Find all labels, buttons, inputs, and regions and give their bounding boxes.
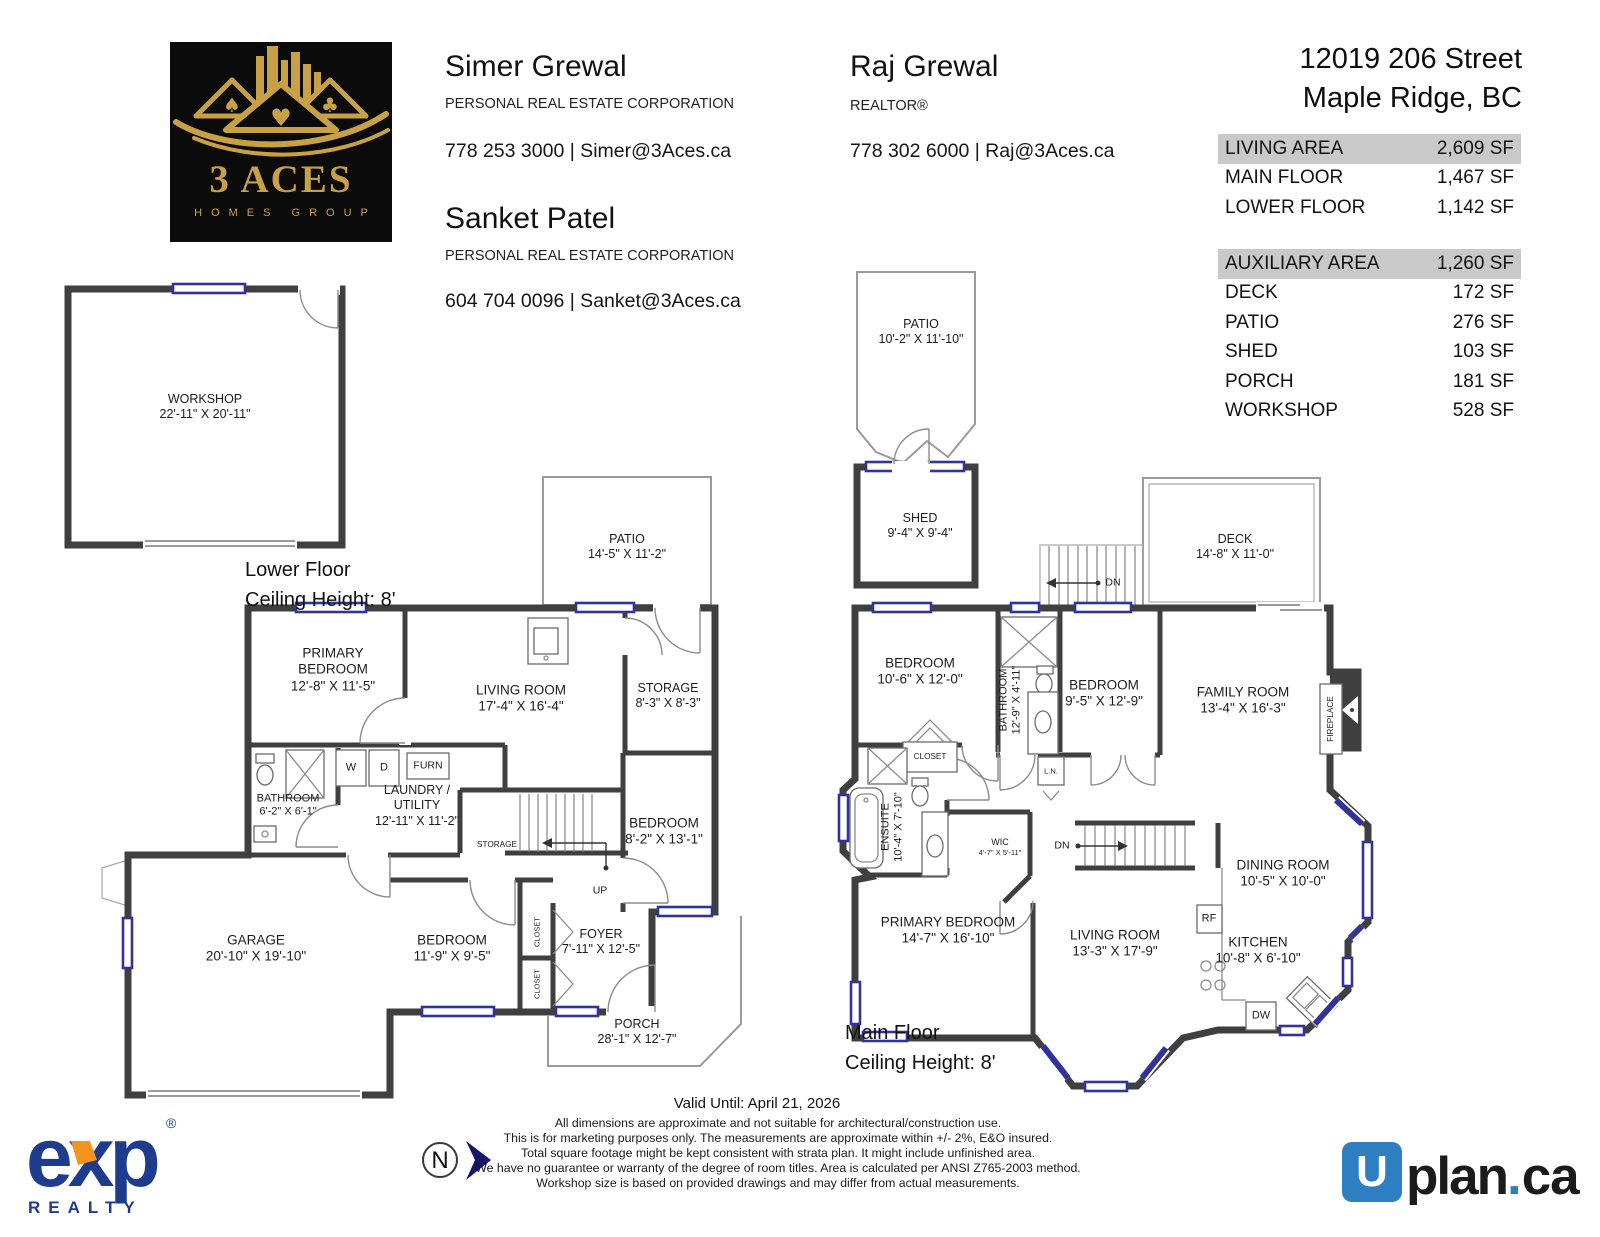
room-label-workshop: WORKSHOP22'-11" X 20'-11" bbox=[159, 392, 250, 423]
label-dryer: D bbox=[380, 761, 388, 774]
room-label-primary-bedroom-main: PRIMARY BEDROOM14'-7" X 16'-10" bbox=[881, 915, 1016, 948]
row-label: MAIN FLOOR bbox=[1225, 167, 1343, 189]
room-label-bedroom-lower: BEDROOM11'-9" X 9'-5" bbox=[414, 933, 491, 966]
room-label-bedroom-a: BEDROOM10'-6" X 12'-0" bbox=[877, 656, 962, 689]
row-value: 1,260 SF bbox=[1437, 253, 1514, 275]
room-label-garage: GARAGE20'-10" X 19'-10" bbox=[206, 933, 306, 966]
row-value: 103 SF bbox=[1453, 341, 1514, 363]
room-label-laundry-utility: LAUNDRY / UTILITY12'-11" X 11'-2" bbox=[375, 783, 459, 829]
row-label: SHED bbox=[1225, 341, 1278, 363]
row-value: 181 SF bbox=[1453, 371, 1514, 393]
row-value: 276 SF bbox=[1453, 312, 1514, 334]
agent-name-simer: Simer Grewal bbox=[445, 50, 627, 84]
disclaimer-line: This is for marketing purposes only. The… bbox=[308, 1131, 1248, 1146]
label-stairs-dn: DN bbox=[1054, 840, 1069, 853]
room-label-primary-bedroom-lower: PRIMARY BEDROOM12'-8" X 11'-5" bbox=[291, 645, 375, 694]
label-storage-understairs: STORAGE bbox=[477, 840, 517, 850]
lower-floor-title: Lower FloorCeiling Height: 8' bbox=[245, 555, 396, 615]
row-label: PORCH bbox=[1225, 371, 1294, 393]
exp-registered-mark: ® bbox=[166, 1115, 177, 1131]
room-label-kitchen: KITCHEN10'-8" X 6'-10" bbox=[1215, 935, 1300, 968]
spade-icon: ♠ bbox=[223, 93, 241, 117]
disclaimer: All dimensions are approximate and not s… bbox=[308, 1116, 1248, 1191]
address-line2: Maple Ridge, BC bbox=[1299, 79, 1522, 118]
room-label-patio-lower: PATIO14'-5" X 11'-2" bbox=[588, 532, 666, 563]
table-row: AUXILIARY AREA 1,260 SF bbox=[1218, 249, 1521, 279]
table-row: LOWER FLOOR 1,142 SF bbox=[1218, 193, 1521, 223]
label-closet-1: CLOSET bbox=[532, 917, 541, 947]
agent-name-sanket: Sanket Patel bbox=[445, 202, 615, 236]
label-deck-stairs-dn: DN bbox=[1105, 577, 1120, 590]
disclaimer-line: We have no guarantee or warranty of the … bbox=[308, 1161, 1248, 1176]
uplan-ca-text: ca bbox=[1522, 1153, 1579, 1202]
room-label-living-room-lower: LIVING ROOM17'-4" X 16'-4" bbox=[476, 683, 566, 716]
disclaimer-line: Workshop size is based on provided drawi… bbox=[308, 1176, 1248, 1191]
label-fridge: RF bbox=[1202, 912, 1217, 925]
row-value: 2,609 SF bbox=[1437, 138, 1514, 160]
label-furnace: FURN bbox=[413, 760, 442, 773]
room-label-family-room: FAMILY ROOM13'-4" X 16'-3" bbox=[1197, 685, 1290, 718]
room-label-deck: DECK14'-8" X 11'-0" bbox=[1196, 532, 1274, 563]
label-stairs-up: UP bbox=[593, 885, 608, 898]
uplan-logo: U plan . ca bbox=[1342, 1142, 1579, 1202]
table-row: MAIN FLOOR 1,467 SF bbox=[1218, 164, 1521, 194]
room-label-patio-main: PATIO10'-2" X 11'-10" bbox=[879, 317, 964, 348]
agent-title-simer: PERSONAL REAL ESTATE CORPORATION bbox=[445, 96, 734, 112]
room-label-bathroom-lower: BATHROOM6'-2" X 6'-1" bbox=[257, 793, 320, 820]
disclaimer-line: Total square footage might be kept consi… bbox=[308, 1146, 1248, 1161]
table-row: DECK 172 SF bbox=[1218, 279, 1521, 309]
disclaimer-line: All dimensions are approximate and not s… bbox=[308, 1116, 1248, 1131]
agent-name-raj: Raj Grewal bbox=[850, 50, 998, 84]
label-dishwasher: DW bbox=[1252, 1009, 1270, 1022]
agent-contact-sanket: 604 704 0096 | Sanket@3Aces.ca bbox=[445, 290, 741, 313]
row-value: 1,142 SF bbox=[1437, 197, 1514, 219]
row-label: LOWER FLOOR bbox=[1225, 197, 1365, 219]
three-aces-logo: ♠ ♥ ♣ 3 ACES HOMES GROUP bbox=[170, 42, 392, 242]
label-fireplace: FIREPLACE bbox=[1326, 696, 1336, 742]
row-label: LIVING AREA bbox=[1225, 138, 1343, 160]
agent-title-raj: REALTOR® bbox=[850, 98, 928, 114]
heart-icon: ♥ bbox=[270, 104, 292, 132]
uplan-u-icon: U bbox=[1342, 1142, 1402, 1202]
address-line1: 12019 206 Street bbox=[1299, 40, 1522, 79]
north-letter: N bbox=[431, 1147, 448, 1175]
room-label-living-room-main: LIVING ROOM13'-3" X 17'-9" bbox=[1070, 928, 1160, 961]
auxiliary-area-table: AUXILIARY AREA 1,260 SF DECK 172 SF PATI… bbox=[1218, 249, 1521, 426]
table-row: PATIO 276 SF bbox=[1218, 308, 1521, 338]
table-row: WORKSHOP 528 SF bbox=[1218, 397, 1521, 427]
room-label-bathroom-main: BATHROOM12'-9" X 4'-11" bbox=[998, 666, 1025, 735]
label-linen: L.N. bbox=[1044, 766, 1058, 775]
room-label-wic: WIC4'-7" X 5'-11" bbox=[979, 837, 1022, 857]
label-closet-2: CLOSET bbox=[532, 969, 541, 999]
exp-realty-logo: exp ® REALTY bbox=[26, 1110, 196, 1225]
brand-name: 3 ACES bbox=[170, 157, 392, 202]
label-washer: W bbox=[346, 761, 356, 774]
table-row: PORCH 181 SF bbox=[1218, 367, 1521, 397]
room-label-ensuite: ENSUITE10'-4" X 7'-10" bbox=[880, 792, 907, 862]
valid-until: Valid Until: April 21, 2026 bbox=[674, 1095, 841, 1112]
table-row: LIVING AREA 2,609 SF bbox=[1218, 134, 1521, 164]
label-closet-main: CLOSET bbox=[914, 752, 947, 762]
club-icon: ♣ bbox=[321, 93, 339, 117]
floor-plan-sheet: { "header": { "brand": { "name_top": "3 … bbox=[0, 0, 1600, 1237]
agent-title-sanket: PERSONAL REAL ESTATE CORPORATION bbox=[445, 248, 734, 264]
row-label: AUXILIARY AREA bbox=[1225, 253, 1380, 275]
three-aces-emblem-icon: ♠ ♥ ♣ bbox=[170, 42, 392, 160]
row-label: PATIO bbox=[1225, 312, 1279, 334]
row-label: WORKSHOP bbox=[1225, 400, 1338, 422]
room-label-porch: PORCH28'-1" X 12'-7" bbox=[598, 1017, 677, 1048]
living-area-table: LIVING AREA 2,609 SF MAIN FLOOR 1,467 SF… bbox=[1218, 134, 1521, 223]
table-row: SHED 103 SF bbox=[1218, 338, 1521, 368]
room-label-foyer: FOYER7'-11" X 12'-5" bbox=[562, 927, 640, 958]
row-value: 172 SF bbox=[1453, 282, 1514, 304]
property-address: 12019 206 Street Maple Ridge, BC bbox=[1299, 40, 1522, 118]
brand-subtitle: HOMES GROUP bbox=[170, 207, 392, 219]
main-floor-title: Main FloorCeiling Height: 8' bbox=[845, 1018, 996, 1078]
room-label-storage: STORAGE8'-3" X 8'-3" bbox=[635, 681, 700, 712]
uplan-plan-text: plan bbox=[1406, 1153, 1507, 1202]
agent-contact-raj: 778 302 6000 | Raj@3Aces.ca bbox=[850, 140, 1114, 163]
row-value: 528 SF bbox=[1453, 400, 1514, 422]
row-value: 1,467 SF bbox=[1437, 167, 1514, 189]
exp-realty-text: REALTY bbox=[28, 1198, 143, 1217]
room-label-bedroom-b: BEDROOM9'-5" X 12'-9" bbox=[1065, 678, 1143, 711]
room-label-shed: SHED9'-4" X 9'-4" bbox=[887, 511, 952, 542]
agent-contact-simer: 778 253 3000 | Simer@3Aces.ca bbox=[445, 140, 731, 163]
room-label-bedroom-right-lower: BEDROOM8'-2" X 13'-1" bbox=[625, 816, 703, 849]
row-label: DECK bbox=[1225, 282, 1278, 304]
uplan-dot: . bbox=[1507, 1153, 1522, 1202]
room-label-dining-room: DINING ROOM10'-5" X 10'-0" bbox=[1237, 858, 1330, 891]
